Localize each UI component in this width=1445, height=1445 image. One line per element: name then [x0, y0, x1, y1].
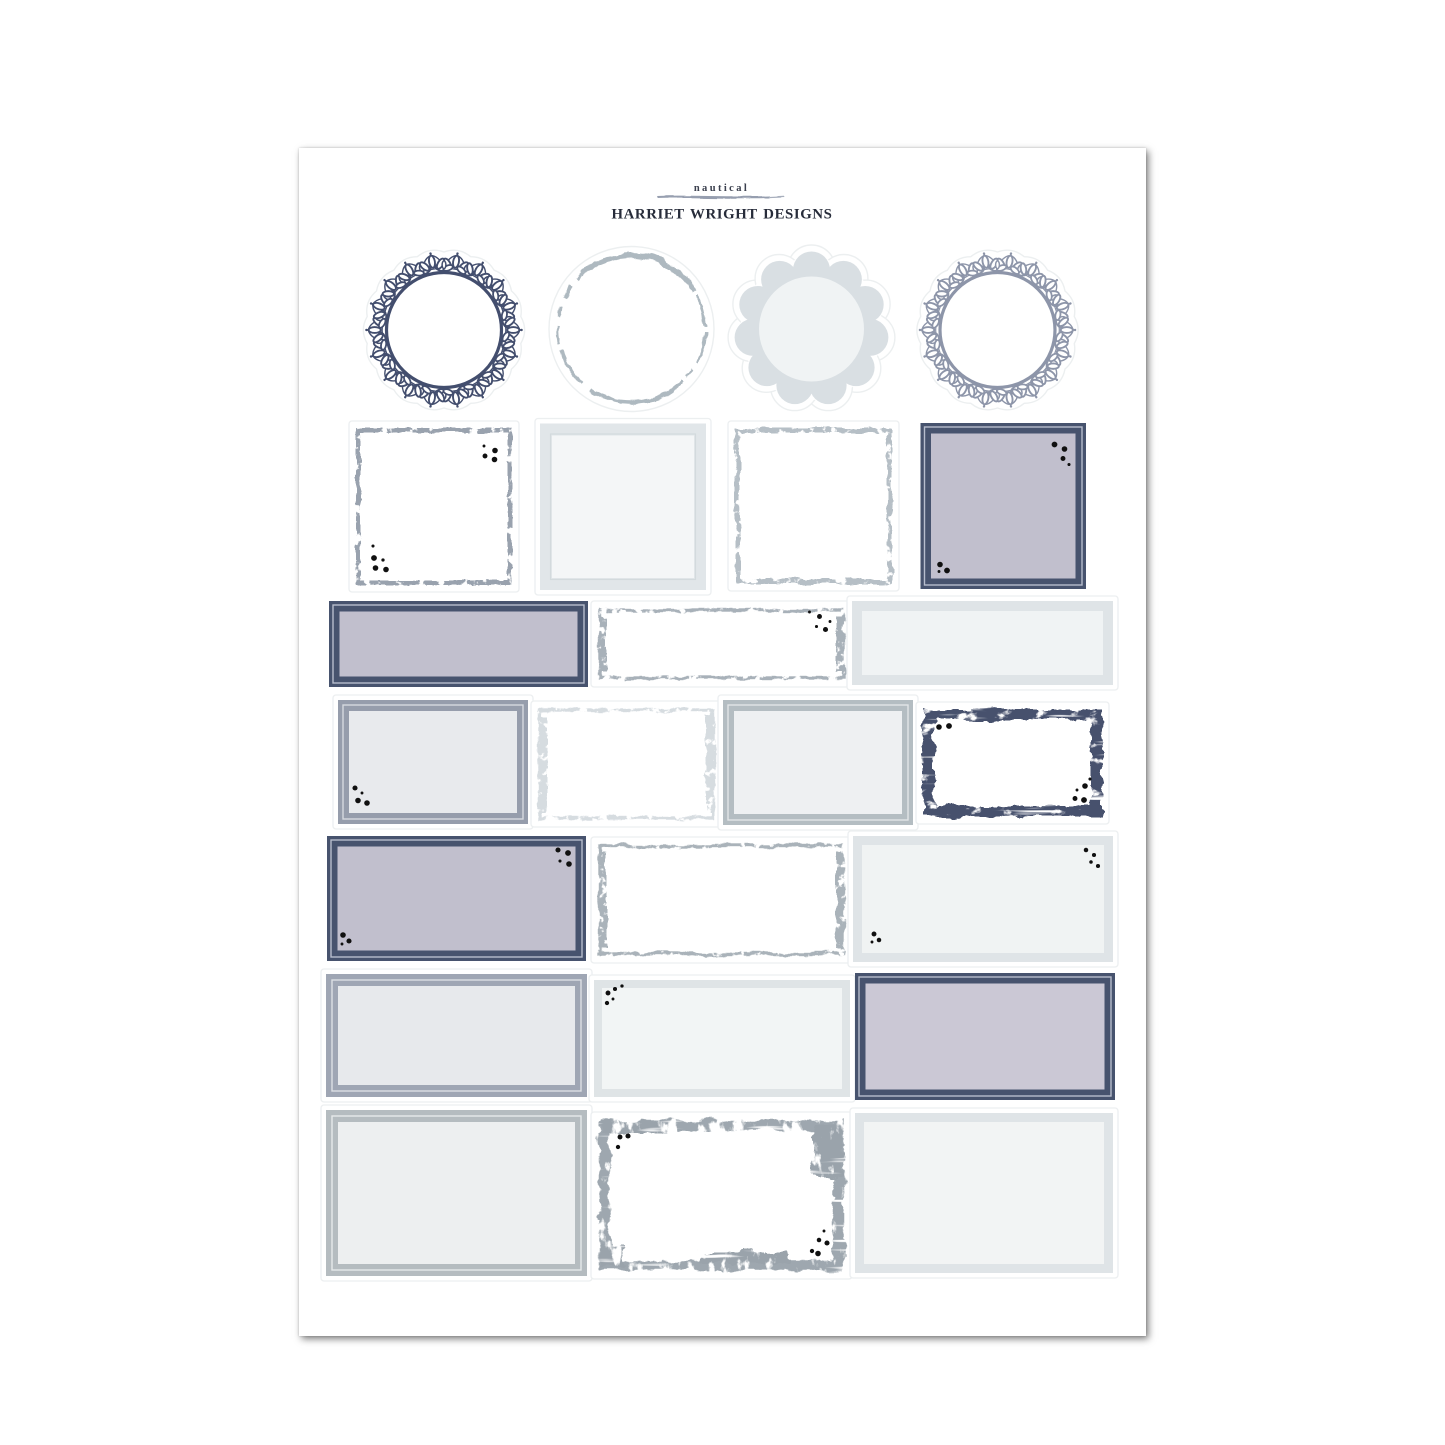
svg-text:HARRIET WRIGHT DESIGNS: HARRIET WRIGHT DESIGNS [612, 207, 833, 223]
svg-text:nautical: nautical [694, 183, 749, 194]
